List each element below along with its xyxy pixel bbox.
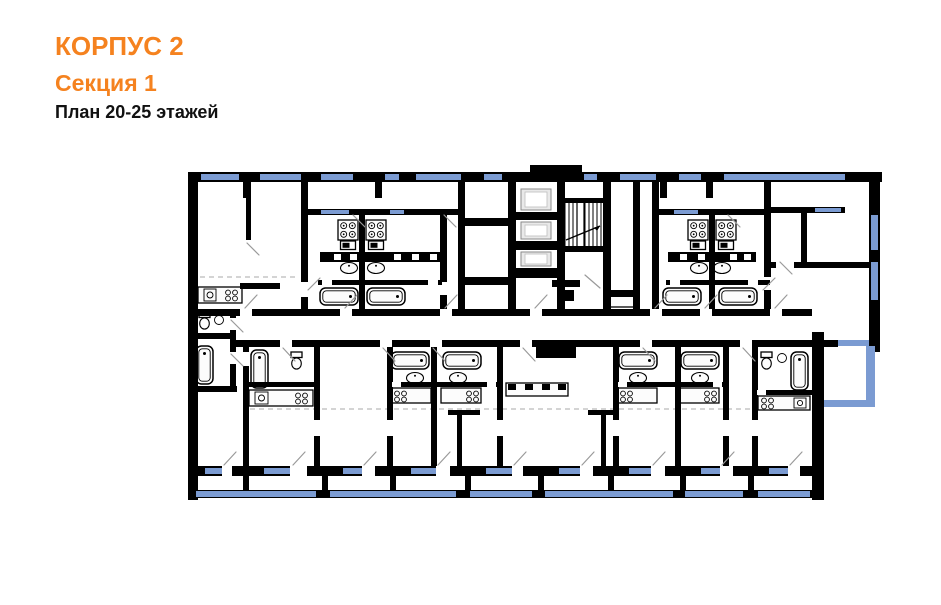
floor-plan-svg	[0, 0, 941, 600]
floor-plan	[0, 0, 941, 605]
staircase	[565, 200, 601, 250]
